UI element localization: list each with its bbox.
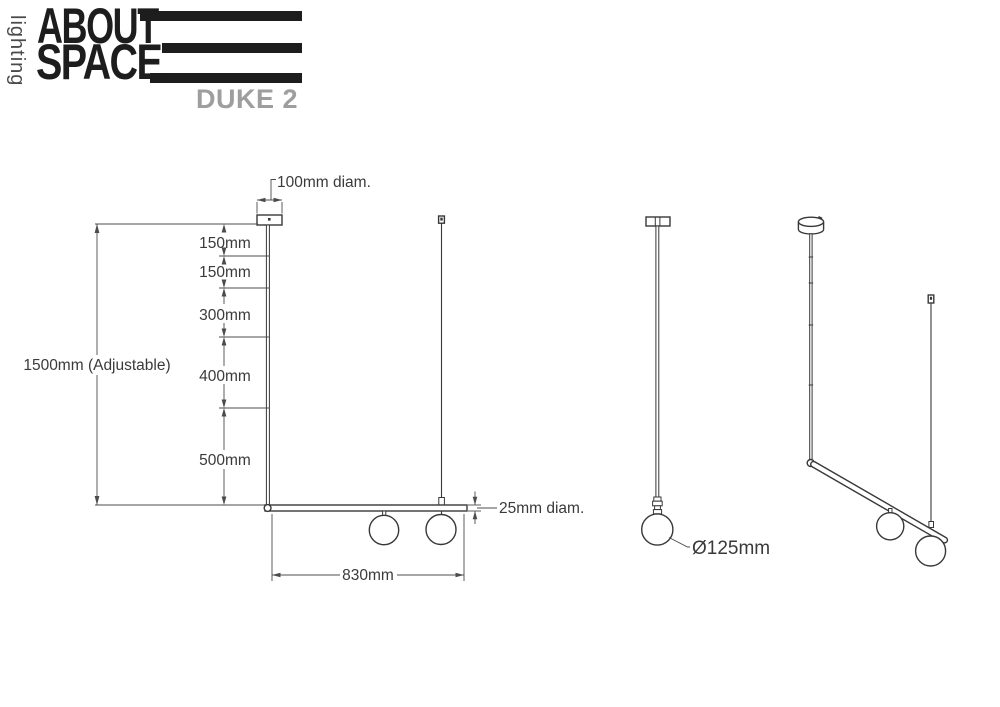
arrowhead-left — [272, 573, 281, 578]
glass-sphere-right — [426, 515, 456, 545]
leader-line — [669, 538, 690, 548]
rod-front — [266, 225, 269, 505]
arrowhead-left — [257, 198, 266, 203]
canopy-center-mark — [268, 218, 271, 221]
cable-top-fitting-detail — [930, 297, 932, 300]
segment-label: 400mm — [199, 368, 251, 385]
sphere-fitting — [653, 501, 663, 506]
sphere-diameter-label: Ø125mm — [692, 538, 770, 559]
cable-top-fitting-detail — [440, 218, 442, 221]
arrowhead-down — [222, 497, 227, 506]
rod-perspective — [810, 234, 812, 461]
overall-height-label: 1500mm (Adjustable) — [23, 357, 170, 374]
arrowhead-up — [222, 288, 227, 297]
arrowhead-down — [473, 497, 478, 505]
side-view: Ø125mm — [642, 217, 770, 559]
arrowhead-up — [222, 408, 227, 417]
rod-side — [656, 226, 659, 497]
segment-label: 500mm — [199, 452, 251, 469]
glass-sphere-right-perspective — [916, 536, 946, 566]
sphere-fitting — [655, 506, 661, 510]
arrowhead-down — [222, 400, 227, 409]
leader-line — [271, 180, 276, 200]
arrowhead-down — [222, 329, 227, 338]
perspective-view — [798, 217, 948, 566]
spec-sheet: lighting ABOUT SPACE DUKE 2 — [0, 0, 1000, 707]
segment-label: 300mm — [199, 307, 251, 324]
canopy-top-ellipse — [798, 217, 823, 226]
cable-bar-clamp — [929, 522, 934, 528]
arrowhead-up — [473, 511, 478, 519]
front-view — [257, 215, 467, 545]
arrowhead-up — [95, 224, 100, 233]
segment-label: 150mm — [199, 264, 251, 281]
sphere-fitting — [653, 510, 661, 514]
bar-length-label: 830mm — [342, 567, 394, 584]
arrowhead-up — [222, 224, 227, 233]
arrowhead-right — [456, 573, 465, 578]
glass-sphere-left-perspective — [877, 513, 904, 540]
arrowhead-right — [274, 198, 283, 203]
arrowhead-down — [95, 496, 100, 505]
arrowhead-up — [222, 337, 227, 346]
cable-bar-clamp — [439, 498, 445, 506]
glass-sphere-left — [369, 515, 398, 544]
glass-sphere-side — [642, 514, 673, 545]
bar-diameter-label: 25mm diam. — [499, 500, 584, 517]
dimension-drawing: 1500mm (Adjustable) 150mm — [0, 0, 1000, 707]
bar-left-joint — [264, 505, 271, 512]
front-view-dimensions: 1500mm (Adjustable) 150mm — [23, 174, 584, 584]
sphere-fitting — [654, 497, 661, 501]
horizontal-bar — [265, 505, 467, 511]
canopy-side — [646, 217, 670, 226]
canopy-diameter-label: 100mm diam. — [277, 174, 371, 191]
segment-label: 150mm — [199, 235, 251, 252]
